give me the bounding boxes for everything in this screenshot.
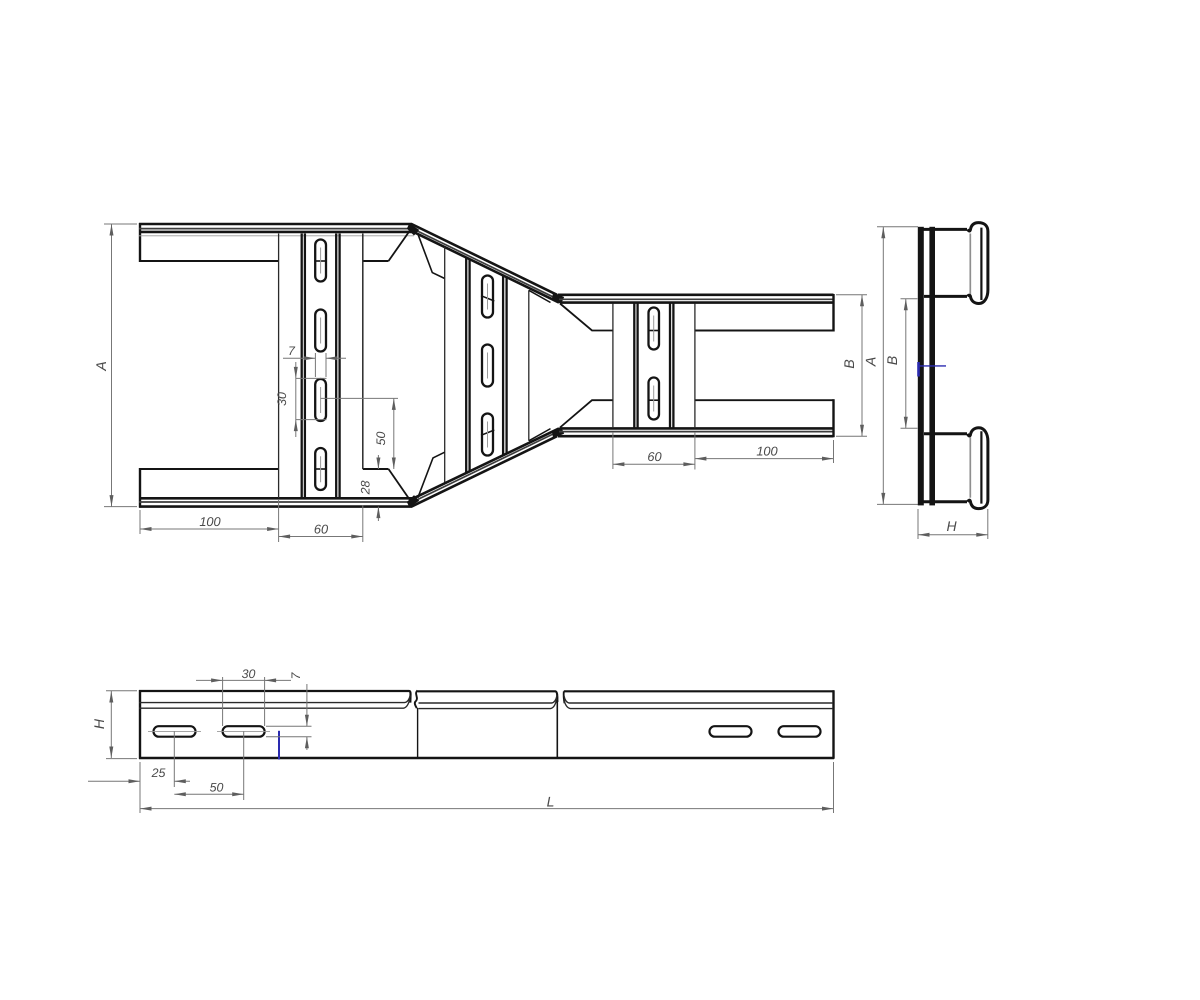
svg-text:100: 100 [199, 514, 221, 529]
svg-text:30: 30 [275, 392, 289, 406]
svg-text:A: A [93, 361, 109, 371]
svg-text:25: 25 [151, 766, 166, 780]
svg-text:A: A [863, 357, 879, 367]
svg-text:H: H [946, 518, 957, 534]
svg-text:B: B [884, 356, 900, 365]
svg-text:60: 60 [647, 449, 662, 464]
svg-text:60: 60 [314, 522, 329, 537]
svg-text:H: H [91, 718, 107, 729]
svg-text:L: L [547, 794, 555, 810]
svg-text:50: 50 [374, 432, 388, 446]
svg-text:7: 7 [289, 671, 303, 679]
svg-text:100: 100 [756, 444, 778, 459]
svg-text:28: 28 [359, 481, 373, 496]
svg-text:B: B [841, 359, 857, 368]
svg-text:50: 50 [210, 781, 224, 795]
svg-text:30: 30 [242, 667, 256, 681]
svg-text:7: 7 [288, 344, 296, 358]
